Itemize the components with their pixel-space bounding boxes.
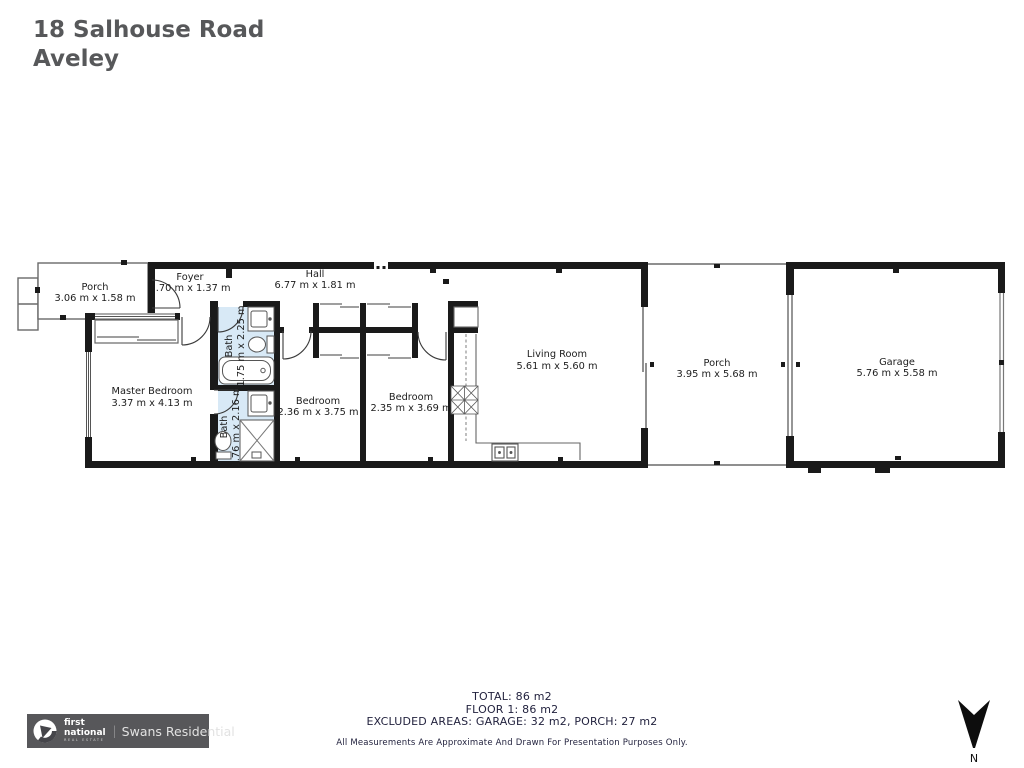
- room-label-master-bedroom: Master Bedroom: [112, 386, 193, 397]
- logo-divider: |: [113, 724, 117, 738]
- bath-bottom-shower-icon: [240, 420, 274, 461]
- room-label-living-room: Living Room: [527, 349, 587, 360]
- bedroom-right-door: [418, 332, 446, 360]
- first-national-wordmark: first national REAL ESTATE: [64, 719, 106, 743]
- master-wardrobe: [95, 320, 178, 343]
- floorplan-page: { "title": { "address_line1": "18 Salhou…: [0, 0, 1024, 768]
- room-dims-garage: 5.76 m x 5.58 m: [857, 368, 938, 379]
- room-dims-master-bedroom: 3.37 m x 4.13 m: [112, 398, 193, 409]
- brand-line-2: national: [64, 729, 106, 738]
- room-dims-living-room: 5.61 m x 5.60 m: [517, 361, 598, 372]
- address-line-2: Aveley: [33, 45, 264, 74]
- summary-total: TOTAL: 86 m2: [0, 691, 1024, 704]
- room-dims-bedroom-right: 2.35 m x 3.69 m: [371, 403, 452, 414]
- room-label-garage: Garage: [879, 357, 915, 368]
- room-dims-bath-top: 1.75 m x 2.25 m: [236, 306, 247, 387]
- room-label-hall: Hall: [306, 269, 325, 280]
- room-label-bath-bottom: Bath: [219, 416, 230, 439]
- kitchen-sink-icon: [492, 444, 518, 461]
- compass: N: [946, 692, 1002, 764]
- room-dims-porch-rear: 3.95 m x 5.68 m: [677, 369, 758, 380]
- north-label: N: [946, 752, 1002, 765]
- bath-top-toilet-icon: [249, 336, 275, 353]
- kitchen-cupboard: [454, 307, 478, 327]
- north-arrow-icon: [946, 692, 1002, 748]
- room-dims-bedroom-left: 2.36 m x 3.75 m: [278, 407, 359, 418]
- master-top-window: [95, 313, 175, 320]
- bedroom-left-door: [283, 331, 311, 359]
- page-title: 18 Salhouse Road Aveley: [33, 16, 264, 74]
- address-line-1: 18 Salhouse Road: [33, 16, 264, 45]
- bath-bottom-vanity-icon: [248, 391, 274, 416]
- living-sliding-door: [641, 307, 648, 428]
- floorplan-drawing: Porch 3.06 m x 1.58 m Foyer 1.70 m x 1.3…: [0, 0, 1024, 768]
- room-label-bedroom-right: Bedroom: [389, 392, 433, 403]
- agency-logo: first national REAL ESTATE | Swans Resid…: [27, 714, 209, 748]
- room-label-foyer: Foyer: [176, 272, 204, 283]
- stove-icon: [451, 386, 478, 414]
- first-national-emblem-icon: [32, 718, 58, 744]
- room-dims-porch-front: 3.06 m x 1.58 m: [55, 293, 136, 304]
- room-label-bath-top: Bath: [224, 335, 235, 358]
- room-labels: Porch 3.06 m x 1.58 m Foyer 1.70 m x 1.3…: [55, 269, 938, 467]
- bath-top-vanity-icon: [248, 307, 274, 331]
- room-label-porch-front: Porch: [82, 282, 109, 293]
- agency-name: Swans Residential: [122, 724, 235, 739]
- brand-subtitle: REAL ESTATE: [64, 739, 106, 743]
- room-dims-foyer: 1.70 m x 1.37 m: [150, 283, 231, 294]
- hall-opening-mark: [374, 262, 388, 269]
- brand-line-1: first: [64, 719, 106, 728]
- room-dims-hall: 6.77 m x 1.81 m: [275, 280, 356, 291]
- master-door: [182, 317, 210, 345]
- master-left-window: [85, 352, 92, 437]
- room-label-bedroom-left: Bedroom: [296, 396, 340, 407]
- room-label-porch-rear: Porch: [704, 358, 731, 369]
- room-dims-bath-bottom: 1.76 m x 2.16 m: [231, 387, 242, 468]
